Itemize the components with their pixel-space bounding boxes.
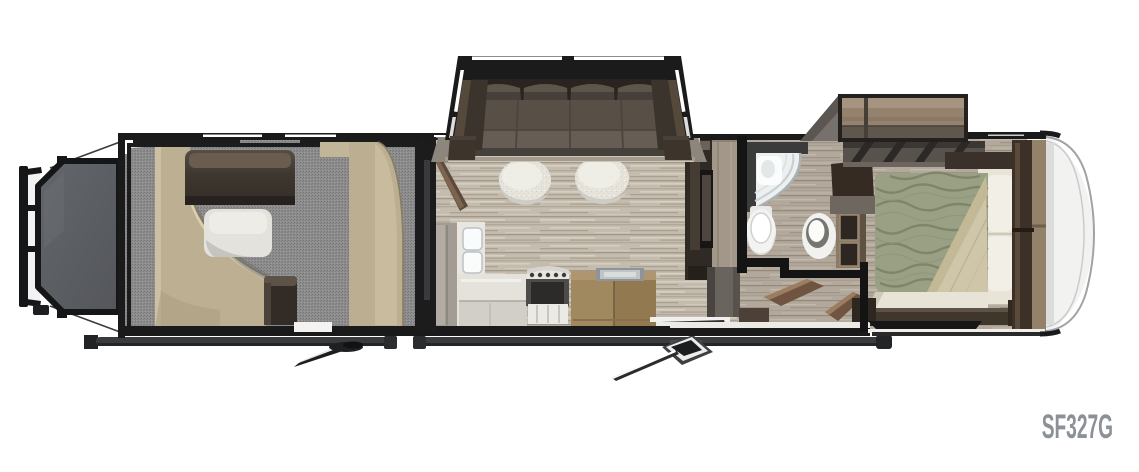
svg-text:SF327G: SF327G <box>1042 407 1113 445</box>
